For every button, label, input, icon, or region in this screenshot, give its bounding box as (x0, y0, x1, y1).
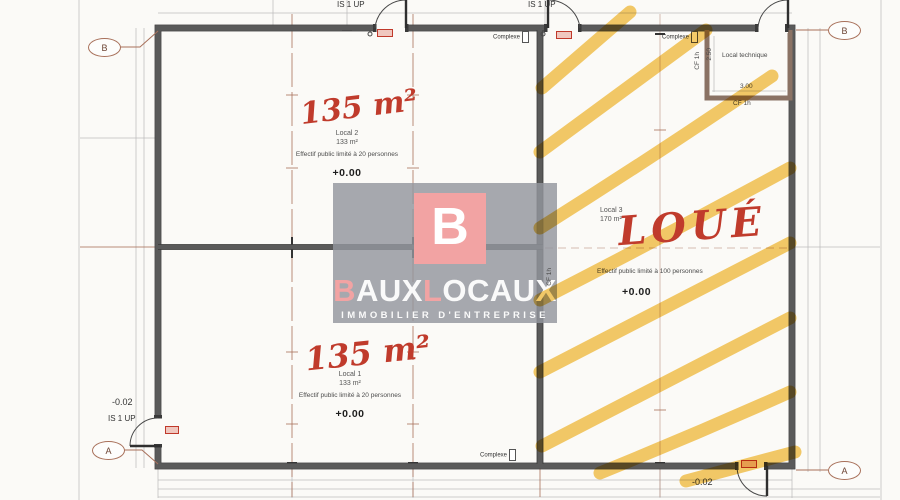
local2-level: +0.00 (277, 167, 417, 179)
complexe-text: Complexe (493, 35, 520, 41)
exit-label-top-right: IS 1 UP (528, 0, 556, 9)
cf-label-technique-bottom: CF 1h (733, 100, 751, 107)
brand-seg: AUX (356, 273, 423, 308)
local2-name: Local 2 (277, 130, 417, 139)
local2-area: 133 m² (277, 139, 417, 148)
grid-bubble-b-left: B (88, 38, 121, 57)
complexe-label-bottom: Complexe (480, 449, 516, 461)
grid-bubble-b-right: B (828, 21, 861, 40)
level-exterior-right: -0.02 (692, 477, 713, 487)
floor-plan: B B A A IS 1 UP IS 1 UP -0.02 IS 1 UP -0… (0, 0, 900, 500)
logo-monogram-letter: B (431, 197, 469, 257)
complexe-symbol (691, 31, 698, 43)
grid-bubble-a-left: A (92, 441, 125, 460)
bauxlocaux-logo-icon: B (414, 193, 486, 264)
local1-capacity: Effectif public limité à 20 personnes (280, 392, 420, 399)
cf-label-technique-side: CF 1h (694, 52, 701, 70)
door-marker-left (165, 426, 179, 434)
door-marker-top-left (377, 29, 393, 37)
door-marker-bottom-right (741, 460, 757, 468)
grid-bubble-a-right: A (828, 461, 861, 480)
brand-seg: OCAUX (442, 273, 556, 308)
complexe-symbol (509, 449, 516, 461)
local3-level: +0.00 (622, 286, 651, 298)
local3-capacity: Effectif public limité à 100 personnes (597, 268, 703, 275)
complexe-label-top-right: Complexe (662, 31, 698, 43)
complexe-symbol (522, 31, 529, 43)
brand-seg: L (423, 273, 442, 308)
brand-name: BAUXLOCAUX (333, 276, 557, 306)
door-marker-top-mid (556, 31, 572, 39)
brand-tagline: IMMOBILIER D'ENTREPRISE (333, 310, 557, 321)
brand-seg: B (333, 273, 356, 308)
room-local1-info: Local 1 133 m² Effectif public limité à … (280, 371, 420, 420)
technique-dim-height: 2.50 (706, 48, 713, 61)
local2-capacity: Effectif public limité à 20 personnes (277, 151, 417, 158)
complexe-text: Complexe (662, 35, 689, 41)
local1-area: 133 m² (280, 380, 420, 389)
bauxlocaux-watermark: B BAUXLOCAUX IMMOBILIER D'ENTREPRISE (333, 183, 557, 323)
local1-level: +0.00 (280, 408, 420, 420)
local-technique-name: Local technique (722, 52, 768, 59)
level-exterior-left: -0.02 (112, 397, 133, 407)
technique-dim-width: 3.00 (740, 83, 753, 90)
complexe-label-top-left: Complexe (493, 31, 529, 43)
complexe-text: Complexe (480, 453, 507, 459)
exit-label-top-left: IS 1 UP (337, 0, 365, 9)
exit-label-bottom-left: IS 1 UP (108, 414, 136, 423)
cf-label-vertical-wall: CF 1h (546, 268, 553, 286)
room-local2-info: Local 2 133 m² Effectif public limité à … (277, 130, 417, 179)
